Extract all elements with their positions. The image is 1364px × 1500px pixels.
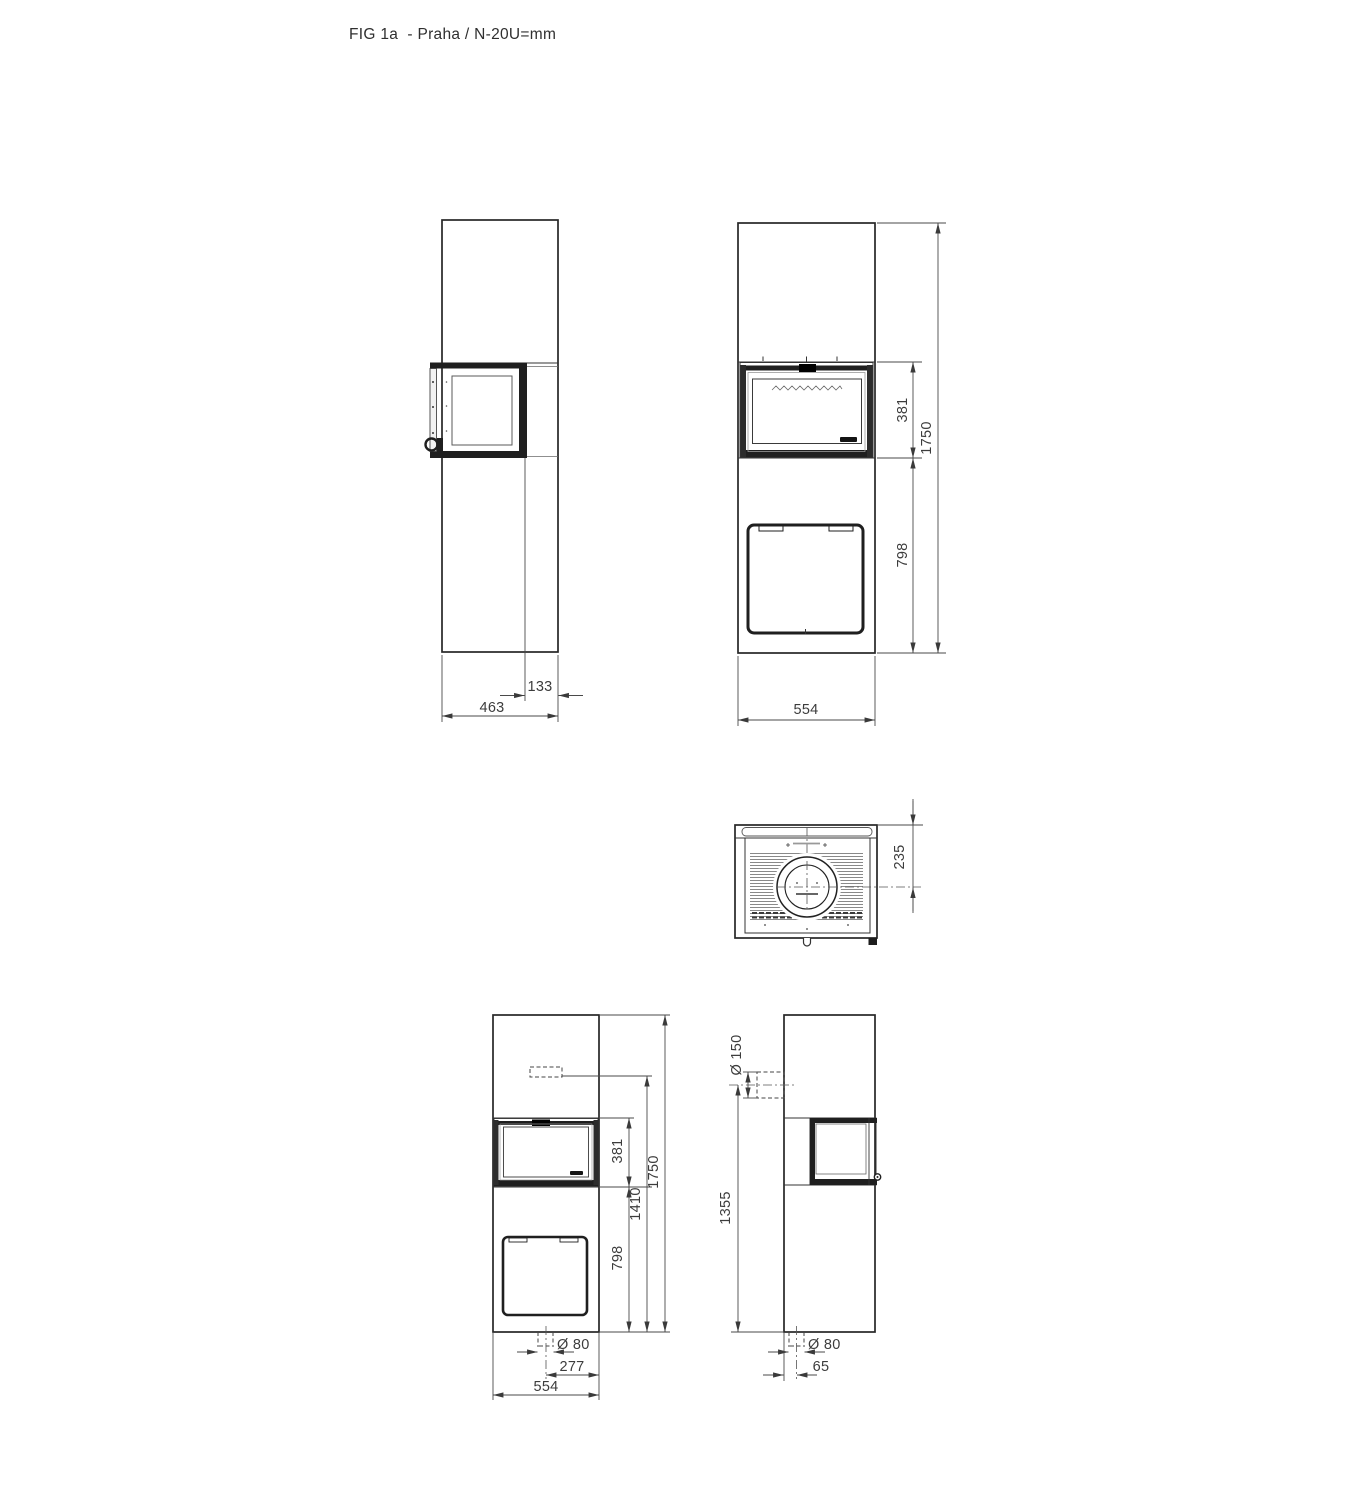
- dim-label-inlet-diameter: Ø 80: [557, 1337, 590, 1353]
- technical-drawing: 133 463: [0, 0, 1364, 1500]
- dim-label-inlet-offset-right: 65: [813, 1359, 830, 1375]
- dim-label-rear-flue-diameter: Ø 150: [729, 1035, 745, 1076]
- figure-title: FIG 1a - Praha / N-20U=mm: [349, 26, 556, 44]
- dim-label-total-height: 1750: [919, 421, 935, 454]
- drawing-page: FIG 1a - Praha / N-20U=mm: [0, 0, 1364, 1500]
- door-bottom-plate: [430, 451, 527, 458]
- dim-label-inlet-offset: 277: [559, 1359, 584, 1375]
- dim-label-total-height-lower: 1750: [646, 1155, 662, 1188]
- brand-logo: [840, 437, 857, 442]
- dim-label-flue-center: 235: [892, 844, 908, 869]
- fire-door-glass-lower: [504, 1127, 589, 1177]
- door-frame-bar: [519, 369, 527, 452]
- corner-latch: [869, 938, 878, 946]
- dim-label-depth: 463: [479, 700, 504, 716]
- side-view-left: 133 463: [426, 220, 584, 722]
- side-view-right: Ø 150 1355 Ø 80 65: [718, 1015, 881, 1381]
- brand-logo-lower: [570, 1171, 583, 1175]
- dim-label-width: 554: [793, 702, 818, 718]
- dim-label-base-height: 798: [895, 542, 911, 567]
- wood-storage-opening: [748, 525, 863, 633]
- rear-tab: [804, 938, 811, 946]
- dim-label-window-height: 381: [895, 397, 911, 422]
- storage-tab-left: [759, 526, 783, 531]
- dim-label-width-lower: 554: [533, 1379, 558, 1395]
- dim-label-inlet-diameter-right: Ø 80: [808, 1337, 841, 1353]
- dim-label-window-height-lower: 381: [610, 1138, 626, 1163]
- dim-label-rear-flue-height: 1355: [718, 1191, 734, 1224]
- fire-door-glass: [753, 379, 862, 444]
- dim-label-rear-outlet-height: 1410: [628, 1187, 644, 1220]
- door-glass-right: [816, 1124, 866, 1174]
- door-glass-side: [452, 376, 512, 445]
- door-top-plate: [430, 363, 527, 369]
- front-view-lower: 381 1410 1750 798 Ø 80 277 554: [493, 1015, 670, 1400]
- top-view: 235: [735, 799, 923, 946]
- dim-label-base-height-lower: 798: [610, 1245, 626, 1270]
- wood-storage-opening-lower: [503, 1237, 587, 1315]
- storage-tab-right: [829, 526, 853, 531]
- door-latch: [799, 364, 816, 372]
- dim-label-door-offset: 133: [527, 679, 552, 695]
- front-view: 381 1750 798 554: [738, 223, 946, 726]
